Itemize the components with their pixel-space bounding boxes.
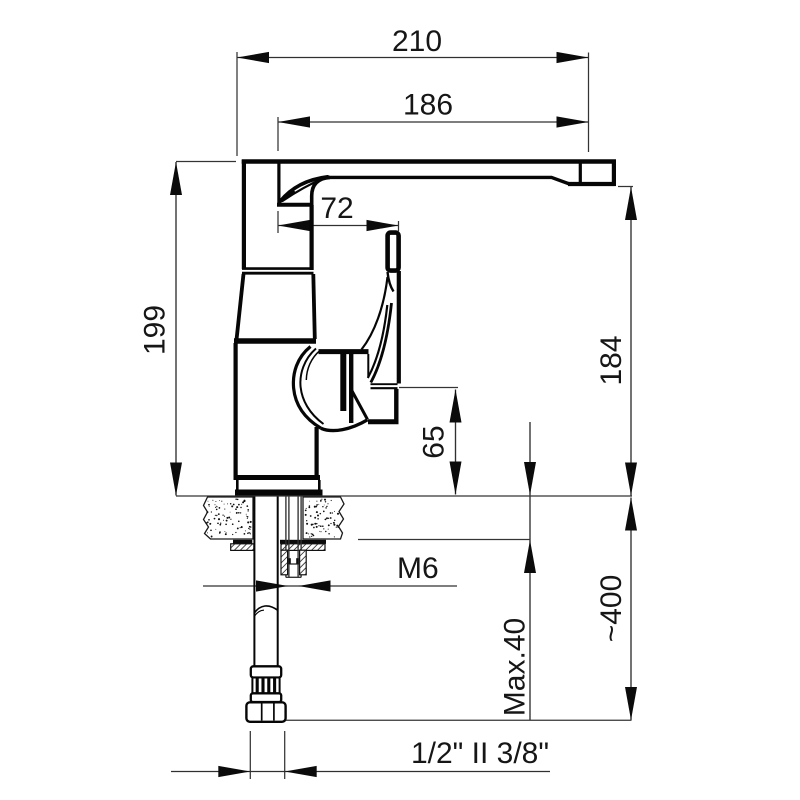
svg-text:1/2" II 3/8": 1/2" II 3/8" bbox=[411, 737, 549, 770]
svg-text:72: 72 bbox=[320, 192, 353, 225]
svg-text:65: 65 bbox=[418, 425, 451, 458]
svg-text:199: 199 bbox=[139, 305, 172, 355]
svg-text:186: 186 bbox=[403, 89, 453, 122]
svg-text:210: 210 bbox=[392, 25, 442, 58]
svg-text:184: 184 bbox=[595, 335, 628, 385]
svg-text:~400: ~400 bbox=[595, 575, 628, 643]
svg-text:M6: M6 bbox=[397, 552, 439, 585]
svg-text:Max.40: Max.40 bbox=[499, 618, 532, 716]
